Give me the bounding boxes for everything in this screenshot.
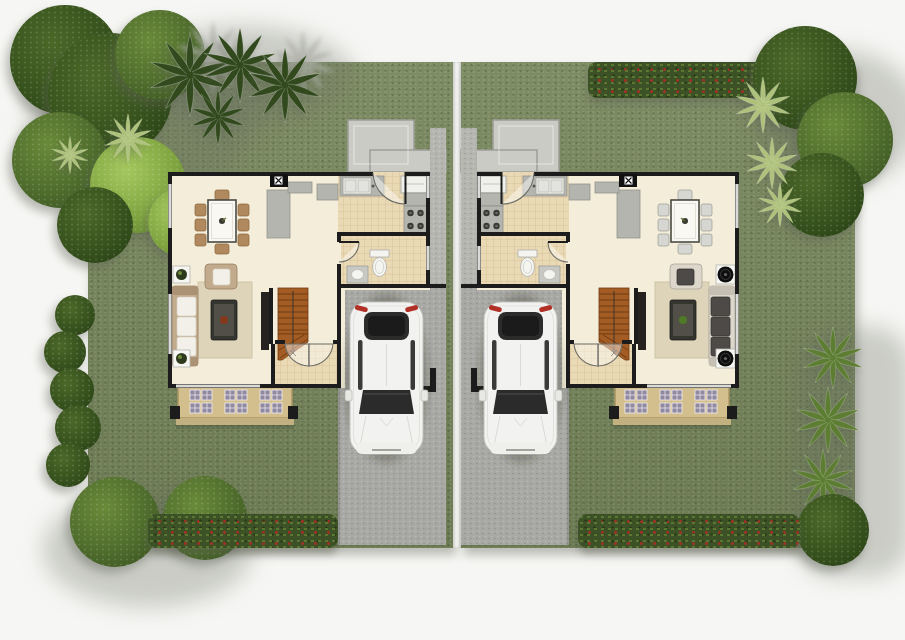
tv-console (261, 292, 269, 350)
tree-canopy (57, 187, 133, 263)
side-window (492, 340, 497, 390)
round-bush (797, 494, 869, 566)
floor-speaker (716, 265, 735, 284)
palm-plant (793, 385, 863, 455)
panel-x-marker (270, 174, 288, 187)
coffee-table (670, 300, 696, 340)
sunroof (502, 316, 539, 336)
side-mirror (345, 390, 352, 401)
side-window (411, 340, 416, 390)
sunroof (368, 316, 405, 336)
porch-post (727, 406, 737, 419)
stove (480, 206, 503, 234)
vanity-sink (347, 266, 368, 283)
porch-post (170, 406, 180, 419)
palm-plant (800, 325, 866, 391)
plant-side-table (173, 266, 190, 283)
side-window (358, 340, 363, 390)
house-unit-right (461, 120, 739, 545)
car (345, 302, 428, 454)
shrub (55, 295, 95, 335)
shrub (46, 443, 90, 487)
side-walkway (461, 128, 477, 288)
front-porch (176, 386, 294, 429)
side-mirror (555, 390, 562, 401)
porch-post (288, 406, 298, 419)
house-unit-left (168, 120, 446, 545)
palm-plant (102, 112, 154, 164)
floor-plan-canvas (0, 0, 905, 640)
front-bumper (490, 442, 551, 454)
coffee-table (211, 300, 237, 340)
porch-post (609, 406, 619, 419)
front-porch (613, 386, 731, 429)
lot-divider (453, 62, 461, 548)
side-window (545, 340, 550, 390)
plant-side-table (173, 350, 190, 367)
lot-left-lawn (88, 62, 453, 548)
armchair (670, 264, 702, 289)
front-bumper (356, 442, 417, 454)
side-mirror (479, 390, 486, 401)
tv-console (638, 292, 646, 350)
lot-right-lawn (461, 62, 855, 548)
armchair (205, 264, 237, 289)
stove (404, 206, 427, 234)
panel-x-marker (619, 174, 637, 187)
fern-plant (245, 45, 325, 125)
vanity-sink (539, 266, 560, 283)
palm-plant (756, 181, 804, 229)
round-bush (70, 477, 160, 567)
side-walkway (430, 128, 446, 288)
side-mirror (421, 390, 428, 401)
palm-plant (50, 135, 90, 175)
floor-speaker (716, 349, 735, 368)
palm-plant (733, 75, 793, 135)
shrub (44, 331, 86, 373)
car (479, 302, 562, 454)
